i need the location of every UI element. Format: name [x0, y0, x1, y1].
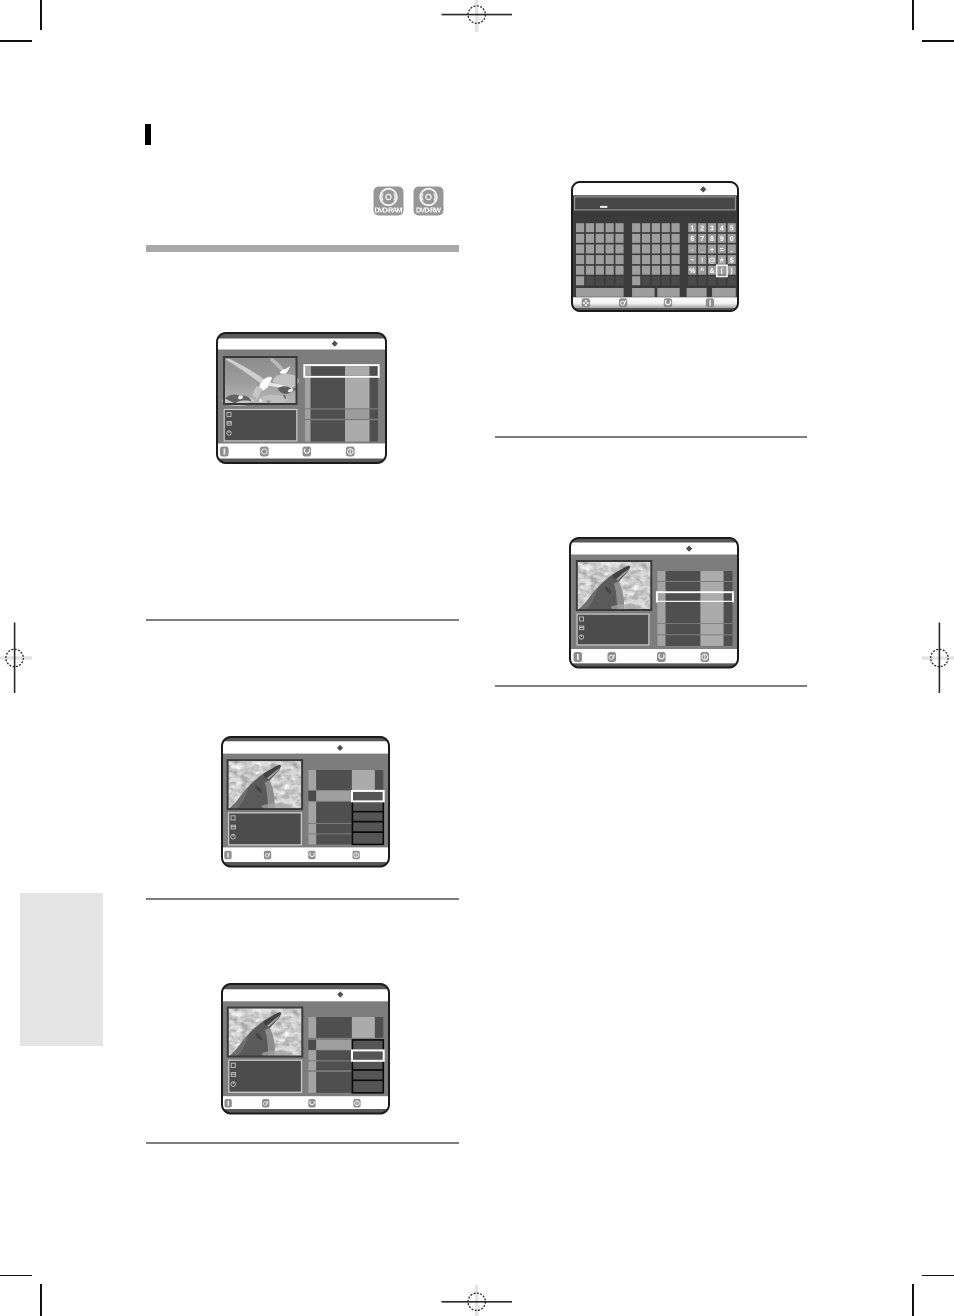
- svg-text:9: 9: [720, 236, 724, 243]
- svg-text:6: 6: [690, 236, 694, 243]
- svg-text:1: 1: [690, 226, 694, 233]
- svg-text:DVD-RW: DVD-RW: [416, 206, 441, 215]
- svg-text:DVD-RAM: DVD-RAM: [375, 206, 403, 215]
- svg-text:+: +: [710, 247, 714, 254]
- svg-text:0: 0: [730, 236, 734, 243]
- svg-text:!: !: [701, 257, 703, 264]
- svg-text:@: @: [709, 257, 716, 264]
- svg-text:3: 3: [710, 226, 714, 233]
- svg-text:2: 2: [700, 226, 704, 233]
- svg-text:5: 5: [730, 226, 734, 233]
- svg-text:=: =: [720, 247, 724, 254]
- svg-text:.: .: [731, 247, 733, 254]
- svg-text:_: _: [699, 247, 704, 254]
- svg-text:%: %: [689, 268, 696, 275]
- svg-text:~: ~: [690, 257, 694, 264]
- svg-text:^: ^: [700, 267, 704, 275]
- svg-text:4: 4: [720, 226, 724, 233]
- svg-text:#: #: [720, 257, 724, 264]
- svg-text:&: &: [709, 268, 714, 275]
- svg-text:$: $: [730, 257, 734, 264]
- svg-text:7: 7: [700, 236, 704, 243]
- svg-text:8: 8: [710, 236, 714, 243]
- svg-text:): ): [731, 268, 733, 275]
